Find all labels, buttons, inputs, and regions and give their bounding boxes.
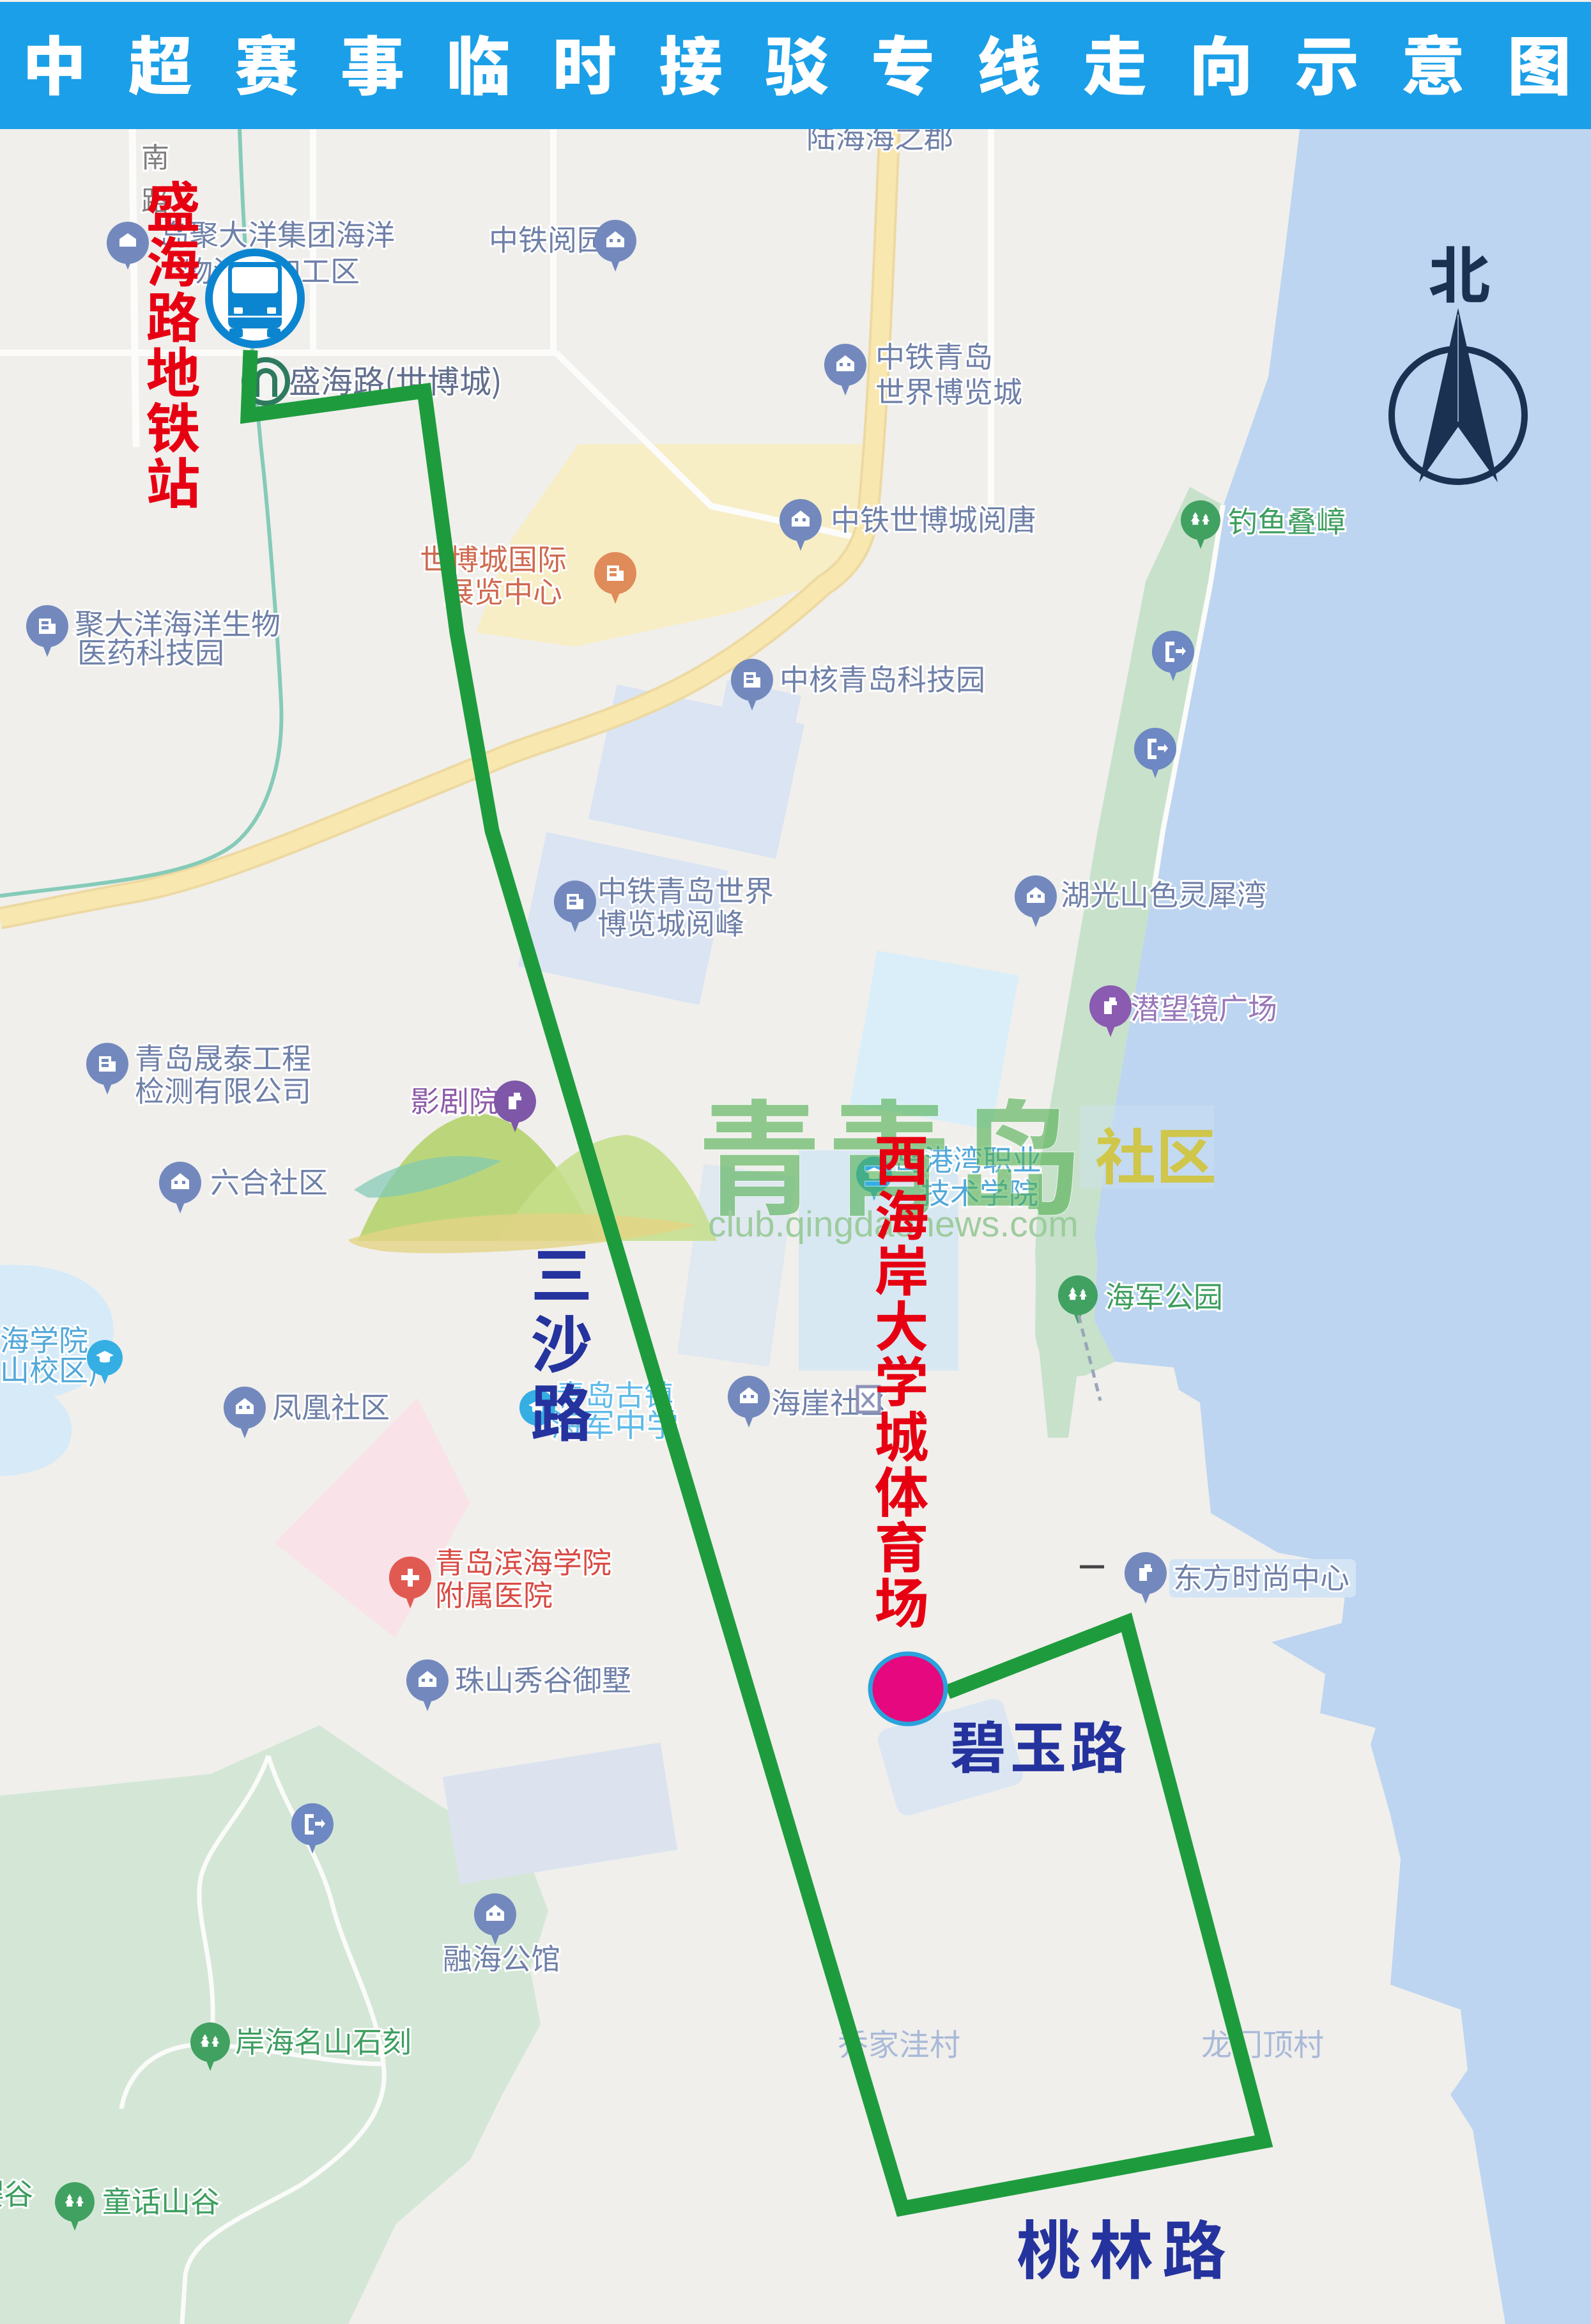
svg-text:潜望镜广场: 潜望镜广场	[1130, 986, 1277, 1028]
svg-text:桃林路: 桃林路	[1017, 2199, 1235, 2292]
svg-text:附属医院: 附属医院	[435, 1573, 553, 1615]
svg-text:珠山秀谷御墅: 珠山秀谷御墅	[455, 1658, 631, 1700]
svg-text:三沙路: 三沙路	[531, 1226, 593, 1454]
svg-text:社区: 社区	[1095, 1109, 1217, 1197]
svg-text:融海公馆: 融海公馆	[443, 1936, 560, 1978]
svg-text:东方时尚中心: 东方时尚中心	[1173, 1555, 1349, 1597]
svg-text:六合社区: 六合社区	[210, 1160, 328, 1202]
svg-text:博览城阅峰: 博览城阅峰	[597, 901, 744, 943]
svg-text:医药科技园: 医药科技园	[77, 630, 224, 672]
svg-text:碧玉路: 碧玉路	[950, 1704, 1130, 1785]
svg-text:影剧院: 影剧院	[410, 1079, 498, 1121]
svg-text:凤凰社区: 凤凰社区	[272, 1385, 390, 1427]
svg-text:中超赛事临时接驳专线走向示意图: 中超赛事临时接驳专线走向示意图	[22, 15, 1591, 108]
svg-text:展览中心: 展览中心	[445, 569, 562, 612]
svg-text:钓鱼叠嶂: 钓鱼叠嶂	[1228, 499, 1346, 541]
svg-text:北: 北	[1429, 226, 1491, 316]
svg-text:湖光山色灵犀湾: 湖光山色灵犀湾	[1061, 872, 1266, 914]
svg-text:中铁阅园: 中铁阅园	[489, 217, 606, 259]
svg-text:中核青岛科技园: 中核青岛科技园	[780, 657, 985, 699]
svg-text:岸海名山石刻: 岸海名山石刻	[235, 2019, 411, 2061]
svg-text:中铁世博城阅唐: 中铁世博城阅唐	[831, 497, 1036, 539]
svg-text:童话山谷: 童话山谷	[102, 2179, 220, 2221]
svg-text:樱谷: 樱谷	[0, 2171, 33, 2213]
svg-text:山校区): 山校区)	[0, 1348, 98, 1390]
svg-text:海军公园: 海军公园	[1105, 1274, 1223, 1316]
svg-text:龙门顶村: 龙门顶村	[1201, 2020, 1324, 2065]
svg-text:盛海路地铁站: 盛海路地铁站	[146, 164, 200, 519]
svg-text:世界博览城: 世界博览城	[875, 369, 1022, 412]
svg-text:西海岸大学城体育场: 西海岸大学城体育场	[874, 1118, 928, 1639]
svg-text:检测有限公司: 检测有限公司	[135, 1068, 311, 1111]
